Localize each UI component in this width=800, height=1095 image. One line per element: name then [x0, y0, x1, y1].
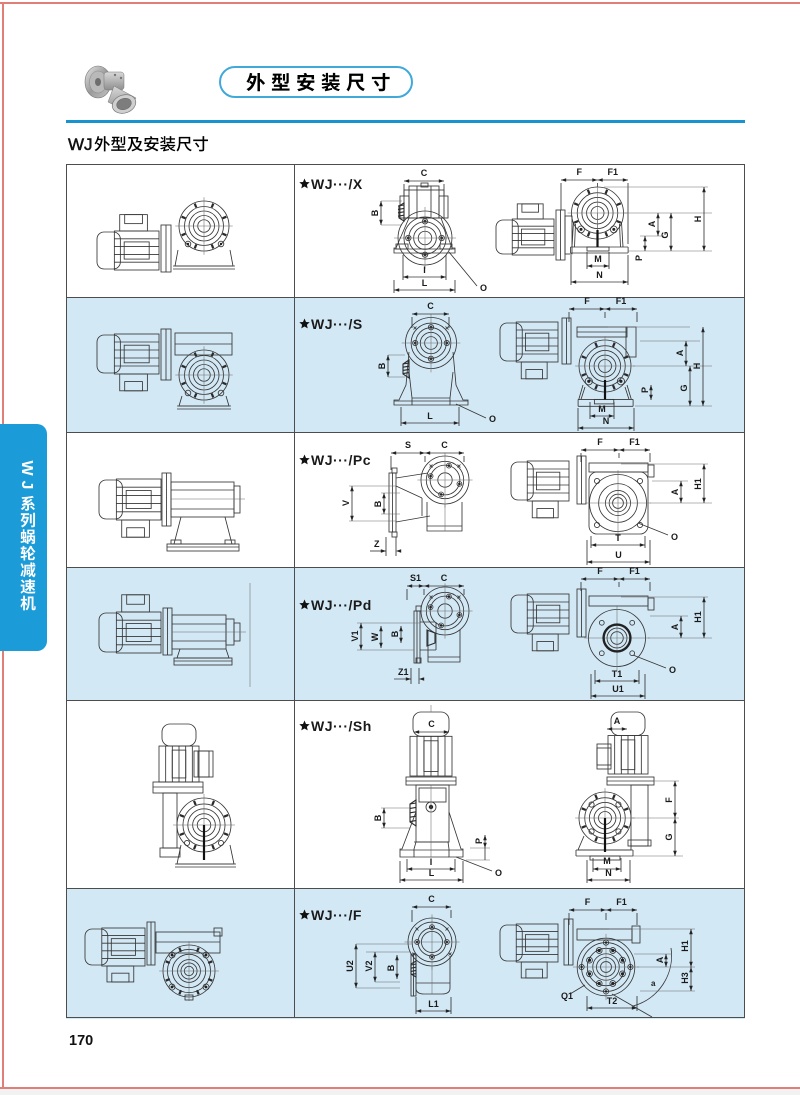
svg-text:a: a: [651, 979, 656, 988]
svg-text:F1: F1: [616, 296, 627, 306]
svg-text:M: M: [594, 254, 602, 264]
svg-text:N: N: [605, 868, 612, 878]
svg-text:L: L: [429, 868, 435, 878]
svg-text:J: J: [18, 481, 35, 490]
svg-text:L: L: [427, 411, 433, 421]
svg-text:V: V: [341, 500, 351, 506]
svg-text:F: F: [585, 897, 591, 907]
svg-text:I: I: [423, 265, 426, 275]
svg-text:S1: S1: [410, 573, 421, 583]
svg-text:C: C: [441, 573, 448, 583]
svg-text:WJ···/Sh: WJ···/Sh: [311, 718, 372, 734]
svg-text:B: B: [377, 362, 387, 369]
svg-text:N: N: [603, 416, 610, 426]
svg-text:P: P: [640, 387, 650, 393]
svg-text:C: C: [421, 168, 428, 178]
svg-text:O: O: [480, 283, 487, 293]
svg-text:F: F: [664, 797, 674, 803]
svg-text:F: F: [597, 566, 603, 576]
svg-text:WJ···/S: WJ···/S: [311, 316, 363, 332]
svg-text:Q1: Q1: [561, 991, 573, 1001]
svg-text:F1: F1: [616, 897, 627, 907]
svg-text:G: G: [679, 384, 689, 391]
svg-text:T2: T2: [607, 996, 618, 1006]
svg-text:H1: H1: [693, 478, 703, 490]
svg-text:Z1: Z1: [398, 667, 409, 677]
svg-text:G: G: [660, 231, 670, 238]
svg-text:L1: L1: [428, 999, 439, 1009]
svg-text:N: N: [596, 270, 603, 280]
svg-text:F: F: [584, 296, 590, 306]
svg-text:P: P: [634, 255, 644, 261]
svg-text:C: C: [441, 440, 448, 450]
svg-text:F1: F1: [629, 437, 640, 447]
svg-text:WJ···/Pc: WJ···/Pc: [311, 452, 371, 468]
svg-text:G: G: [664, 833, 674, 840]
svg-text:C: C: [427, 301, 434, 311]
svg-text:H: H: [693, 216, 703, 223]
svg-text:T1: T1: [612, 669, 623, 679]
svg-text:F: F: [597, 437, 603, 447]
svg-text:S: S: [405, 440, 411, 450]
svg-text:A: A: [647, 220, 657, 227]
svg-text:C: C: [428, 894, 435, 904]
svg-text:WJ···/X: WJ···/X: [311, 176, 363, 192]
svg-text:Z: Z: [374, 539, 380, 549]
svg-text:WJ···/F: WJ···/F: [311, 907, 362, 923]
svg-text:B: B: [373, 814, 383, 821]
svg-text:H1: H1: [680, 940, 690, 952]
svg-text:O: O: [495, 868, 502, 878]
svg-text:B: B: [370, 209, 380, 216]
svg-text:U: U: [615, 550, 622, 560]
svg-text:V1: V1: [350, 630, 360, 641]
svg-text:F: F: [577, 167, 583, 177]
svg-text:C: C: [428, 719, 435, 729]
svg-text:B: B: [386, 964, 396, 971]
svg-text:F1: F1: [607, 167, 618, 177]
svg-text:I: I: [430, 857, 433, 867]
svg-text:B: B: [390, 630, 400, 637]
svg-text:O: O: [669, 665, 676, 675]
svg-text:W: W: [18, 460, 35, 476]
svg-text:F1: F1: [629, 566, 640, 576]
svg-text:B: B: [373, 500, 383, 507]
svg-text:P: P: [474, 838, 484, 844]
svg-text:V2: V2: [364, 960, 374, 971]
svg-text:A: A: [675, 349, 685, 356]
svg-text:A: A: [614, 716, 621, 726]
svg-text:A: A: [655, 956, 665, 963]
svg-text:M: M: [603, 856, 611, 866]
svg-text:H1: H1: [693, 611, 703, 623]
svg-text:U2: U2: [345, 960, 355, 972]
svg-text:A: A: [670, 623, 680, 630]
svg-text:T: T: [615, 533, 621, 543]
svg-text:A: A: [670, 488, 680, 495]
svg-text:O: O: [489, 414, 496, 424]
svg-text:WJ···/Pd: WJ···/Pd: [311, 597, 372, 613]
svg-text:M: M: [598, 404, 606, 414]
svg-text:H3: H3: [680, 972, 690, 984]
svg-text:U1: U1: [612, 684, 624, 694]
svg-text:W: W: [370, 632, 380, 641]
svg-text:H: H: [692, 363, 702, 370]
svg-text:WJ: WJ: [68, 135, 93, 154]
svg-text:O: O: [671, 532, 678, 542]
svg-text:L: L: [422, 278, 428, 288]
